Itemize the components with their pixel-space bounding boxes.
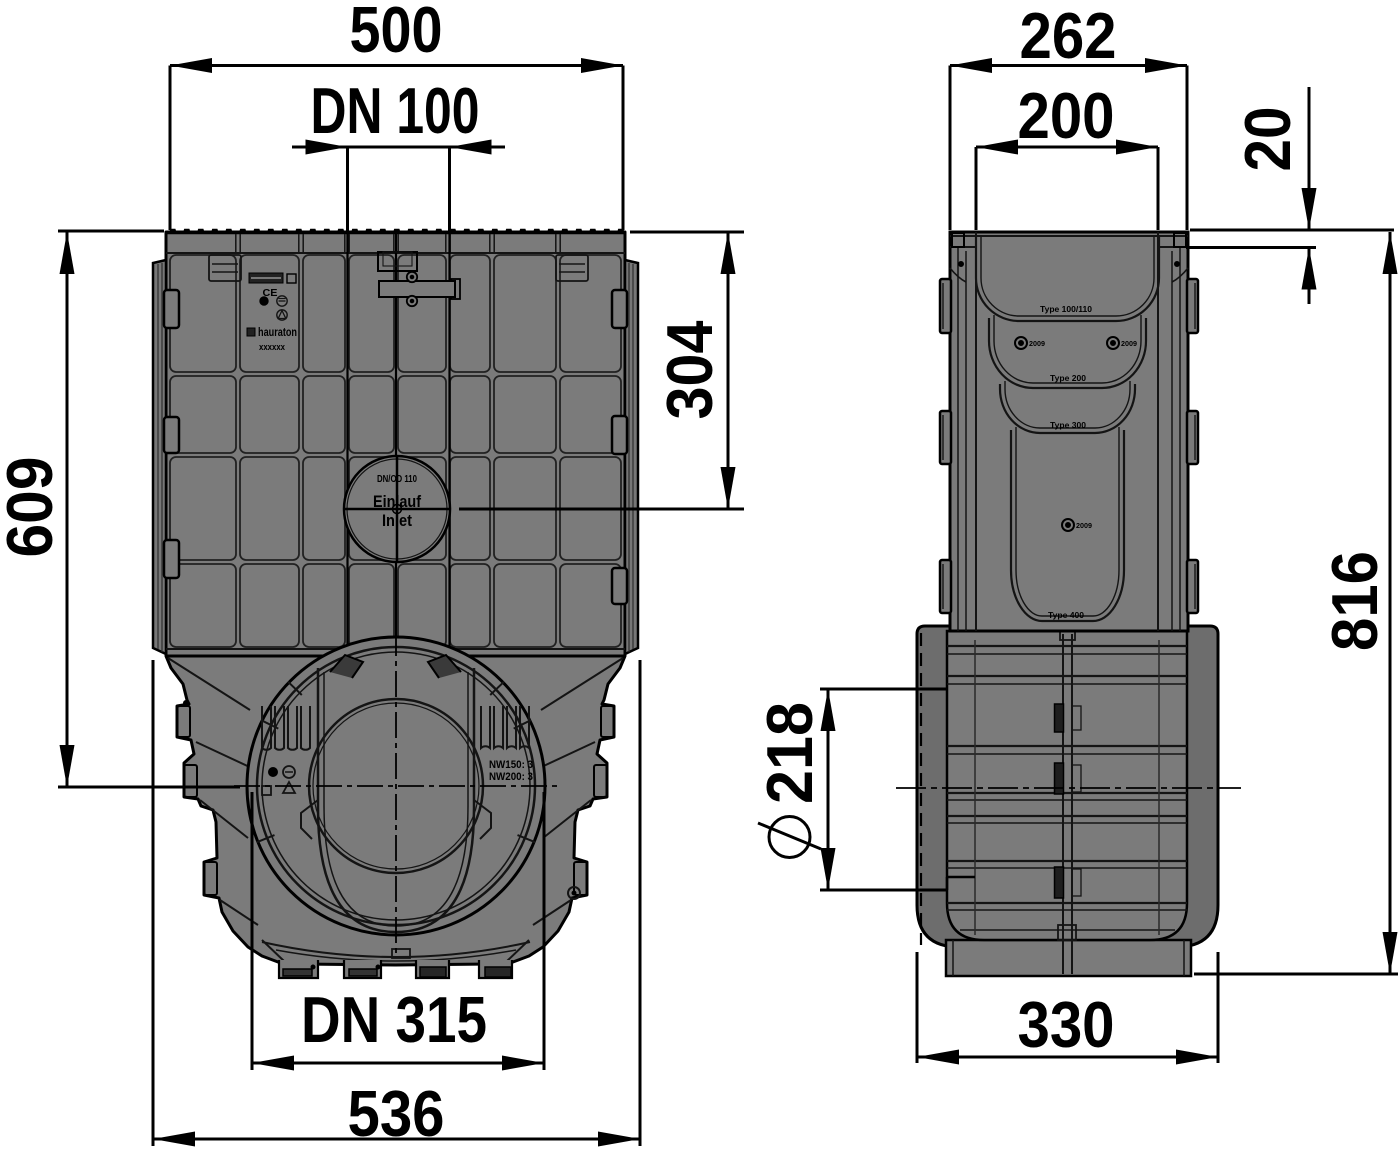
svg-text:304: 304 (653, 321, 726, 420)
svg-text:200: 200 (1018, 79, 1115, 152)
svg-text:Einlauf: Einlauf (373, 492, 421, 511)
svg-text:DN 100: DN 100 (311, 74, 480, 147)
svg-text:hauraton: hauraton (258, 327, 297, 339)
svg-text:2009: 2009 (1121, 341, 1137, 348)
svg-text:Type 200: Type 200 (1050, 373, 1086, 383)
svg-text:Type 300: Type 300 (1050, 420, 1086, 430)
svg-text:DN/OD 110: DN/OD 110 (377, 474, 417, 485)
svg-text:262: 262 (1020, 0, 1117, 72)
svg-text:Inlet: Inlet (382, 511, 412, 530)
svg-text:Type 100/110: Type 100/110 (1040, 304, 1092, 314)
svg-text:2009: 2009 (1029, 341, 1045, 348)
svg-text:500: 500 (350, 0, 443, 66)
svg-text:330: 330 (1018, 988, 1115, 1061)
svg-text:NW150: 3: NW150: 3 (489, 759, 533, 771)
svg-text:2009: 2009 (1076, 523, 1092, 530)
svg-text:xxxxxx: xxxxxx (259, 342, 286, 353)
svg-text:DN 315: DN 315 (301, 983, 487, 1056)
svg-text:816: 816 (1318, 551, 1391, 651)
svg-text:NW200: 3: NW200: 3 (489, 771, 533, 783)
svg-text:20: 20 (1231, 107, 1304, 172)
svg-text:609: 609 (0, 457, 66, 558)
svg-text:Type 400: Type 400 (1048, 610, 1084, 620)
svg-text:218: 218 (753, 702, 826, 804)
